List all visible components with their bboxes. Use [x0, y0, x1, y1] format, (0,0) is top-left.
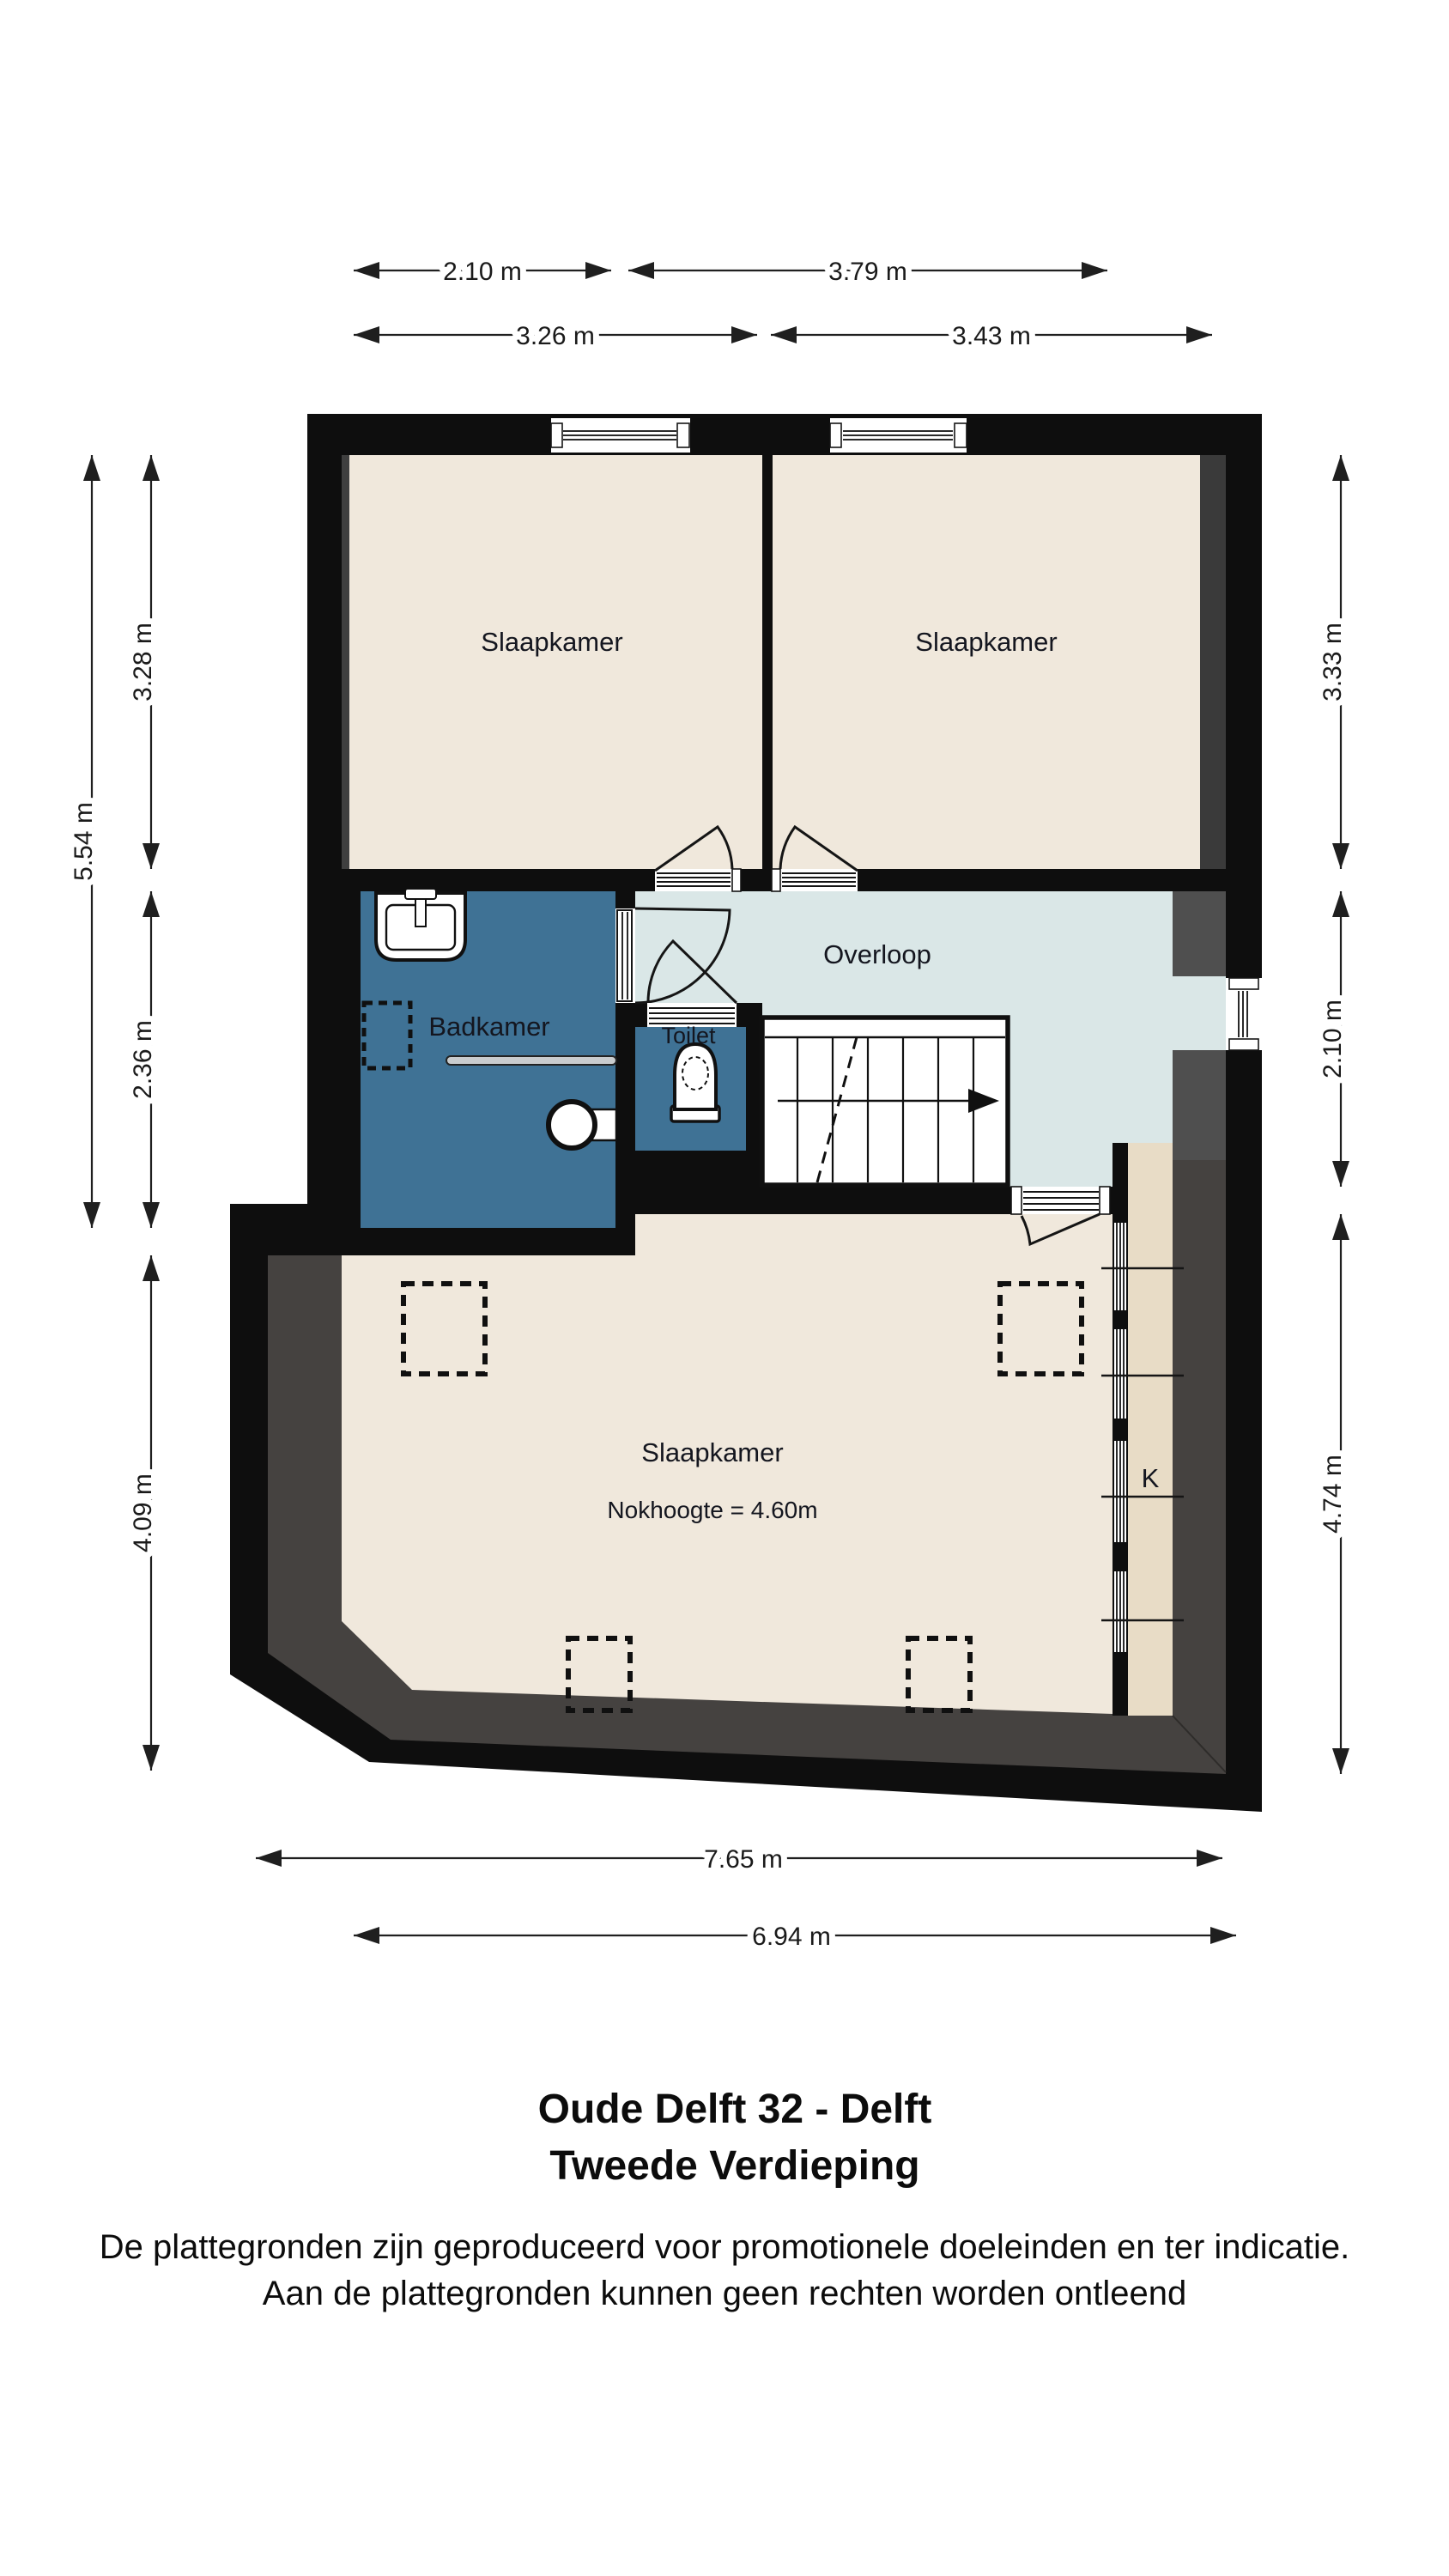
footer-text: Oude Delft 32 - Delft Tweede Verdieping … [100, 2087, 1350, 2312]
page-title-line2: Tweede Verdieping [549, 2143, 919, 2189]
dim-top-326: 3.26 m [354, 322, 757, 350]
landing-label: Overloop [823, 939, 931, 969]
dim-top-210: 2.10 m [354, 258, 611, 286]
dim-top-210-label: 2.10 m [443, 258, 522, 286]
dim-bottom-765: 7.65 m [256, 1845, 1222, 1874]
attic-bedroom-label: Slaapkamer [641, 1437, 783, 1467]
shower-head-icon [549, 1102, 595, 1148]
staircase [762, 1018, 1008, 1185]
bedroom-left-wall-lining [342, 455, 349, 869]
dim-right-474-label: 4.74 m [1319, 1455, 1347, 1534]
dim-bottom-694-label: 6.94 m [752, 1923, 831, 1951]
dim-left-554: 5.54 m [70, 455, 100, 1228]
dim-right-474: 4.74 m [1319, 1214, 1349, 1774]
window-bedroom-right [830, 418, 967, 453]
dim-top-379-label: 3.79 m [828, 258, 907, 286]
dim-bottom-765-label: 7.65 m [704, 1845, 783, 1874]
toilet-icon [671, 1044, 719, 1121]
closet-label: K [1142, 1463, 1160, 1493]
bedroom-right-wall-lining [1200, 455, 1226, 869]
disclaimer-line2: Aan de plattegronden kunnen geen rechten… [263, 2275, 1186, 2312]
dim-left-328-label: 3.28 m [129, 623, 157, 702]
dim-top-343: 3.43 m [771, 322, 1212, 350]
dim-top-379: 3.79 m [628, 258, 1107, 286]
masonry-block-upper [1173, 891, 1226, 976]
dim-left-554-label: 5.54 m [70, 802, 98, 881]
dim-right-210: 2.10 m [1319, 891, 1349, 1187]
closet-floor [1128, 1143, 1173, 1716]
floorplan-canvas: Slaapkamer Slaapkamer Overloop Badkamer … [0, 0, 1449, 2576]
dim-left-328: 3.28 m [129, 455, 160, 869]
dim-left-409-label: 4.09 m [129, 1473, 157, 1552]
dim-left-409: 4.09 m [129, 1255, 160, 1771]
dim-right-210-label: 2.10 m [1319, 999, 1347, 1078]
dim-right-333: 3.33 m [1319, 455, 1349, 869]
dim-left-236-label: 2.36 m [129, 1020, 157, 1099]
bathroom-label: Badkamer [428, 1012, 549, 1042]
bedroom-right-label: Slaapkamer [915, 627, 1057, 657]
masonry-block-lower [1173, 1050, 1226, 1160]
dim-top-326-label: 3.26 m [516, 322, 595, 350]
bedroom-left-label: Slaapkamer [481, 627, 622, 657]
bedroom-left-floor [342, 455, 762, 869]
dim-left-236: 2.36 m [129, 891, 160, 1228]
page-title-line1: Oude Delft 32 - Delft [538, 2087, 932, 2132]
toilet-label: Toilet [661, 1023, 716, 1048]
dim-right-333-label: 3.33 m [1319, 623, 1347, 702]
attic-note-label: Nokhoogte = 4.60m [607, 1497, 817, 1523]
window-landing-east [1226, 978, 1262, 1050]
dim-bottom-694: 6.94 m [354, 1923, 1236, 1951]
dim-top-343-label: 3.43 m [952, 322, 1031, 350]
bedroom-right-floor [773, 455, 1200, 869]
disclaimer-line1: De plattegronden zijn geproduceerd voor … [100, 2228, 1350, 2266]
washbasin-icon [376, 889, 465, 960]
window-bedroom-left [551, 418, 690, 453]
room-floors [230, 455, 1226, 1774]
shower-screen-icon [446, 1056, 616, 1065]
